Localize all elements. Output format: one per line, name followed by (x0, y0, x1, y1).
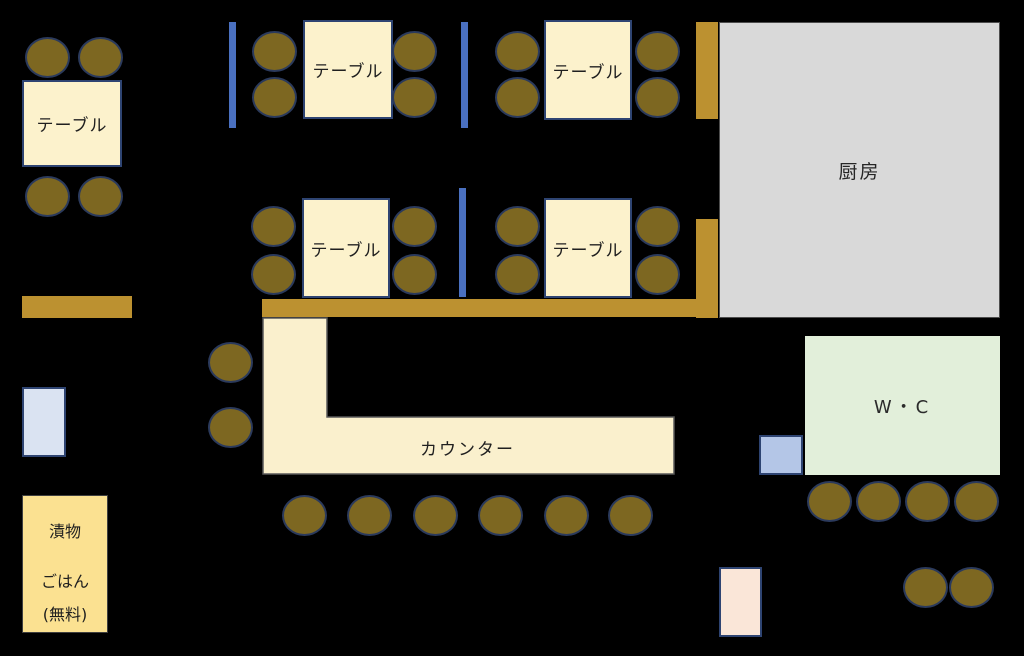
pickles-label: 漬物 (23, 518, 107, 542)
chair (25, 176, 70, 217)
chair (392, 77, 437, 118)
divider-wall (461, 22, 468, 128)
chair (251, 254, 296, 295)
counter-area: カウンター (262, 317, 675, 475)
door-marker-bottom (719, 567, 762, 637)
chair (282, 495, 327, 536)
chair (807, 481, 852, 522)
dining-table-5: テーブル (544, 198, 632, 298)
chair (905, 481, 950, 522)
chair (949, 567, 994, 608)
table-label: テーブル (553, 236, 624, 261)
chair (635, 31, 680, 72)
chair (392, 254, 437, 295)
divider-wall (229, 22, 236, 128)
wall-segment (262, 299, 718, 317)
chair (495, 31, 540, 72)
wc-label: W・C (874, 393, 931, 419)
wall-segment (22, 296, 132, 318)
chair (208, 407, 253, 448)
wall-segment (696, 22, 718, 119)
counter-label: カウンター (420, 435, 515, 460)
chair (954, 481, 999, 522)
wc-area: W・C (805, 336, 1000, 475)
chair (252, 31, 297, 72)
chair (903, 567, 948, 608)
door-marker-left (22, 387, 66, 457)
dining-table-2: テーブル (303, 20, 393, 119)
restaurant-floor-plan: テーブル テーブル テーブル テーブル テーブル 厨房 (0, 0, 1024, 656)
dining-table-4: テーブル (302, 198, 390, 298)
table-label: テーブル (553, 58, 624, 83)
dining-table-3: テーブル (544, 20, 632, 120)
chair (495, 206, 540, 247)
chair (478, 495, 523, 536)
chair (25, 37, 70, 78)
chair (608, 495, 653, 536)
divider-wall (459, 188, 466, 297)
kitchen-label: 厨房 (838, 157, 880, 184)
table-label: テーブル (311, 236, 382, 261)
chair (392, 31, 437, 72)
chair (495, 254, 540, 295)
free-label: (無料) (23, 601, 107, 625)
chair (635, 254, 680, 295)
chair (208, 342, 253, 383)
chair (635, 206, 680, 247)
chair (495, 77, 540, 118)
chair (392, 206, 437, 247)
kitchen-area: 厨房 (719, 22, 1000, 318)
chair (251, 206, 296, 247)
rice-label: ごはん (23, 568, 107, 592)
chair (635, 77, 680, 118)
chair (78, 37, 123, 78)
table-label: テーブル (37, 111, 108, 136)
pickle-rice-station: 漬物 ごはん (無料) (22, 495, 108, 633)
dining-table-1: テーブル (22, 80, 122, 167)
chair (252, 77, 297, 118)
door-marker-wc (759, 435, 803, 475)
table-label: テーブル (313, 57, 384, 82)
chair (856, 481, 901, 522)
chair (347, 495, 392, 536)
chair (78, 176, 123, 217)
chair (544, 495, 589, 536)
chair (413, 495, 458, 536)
